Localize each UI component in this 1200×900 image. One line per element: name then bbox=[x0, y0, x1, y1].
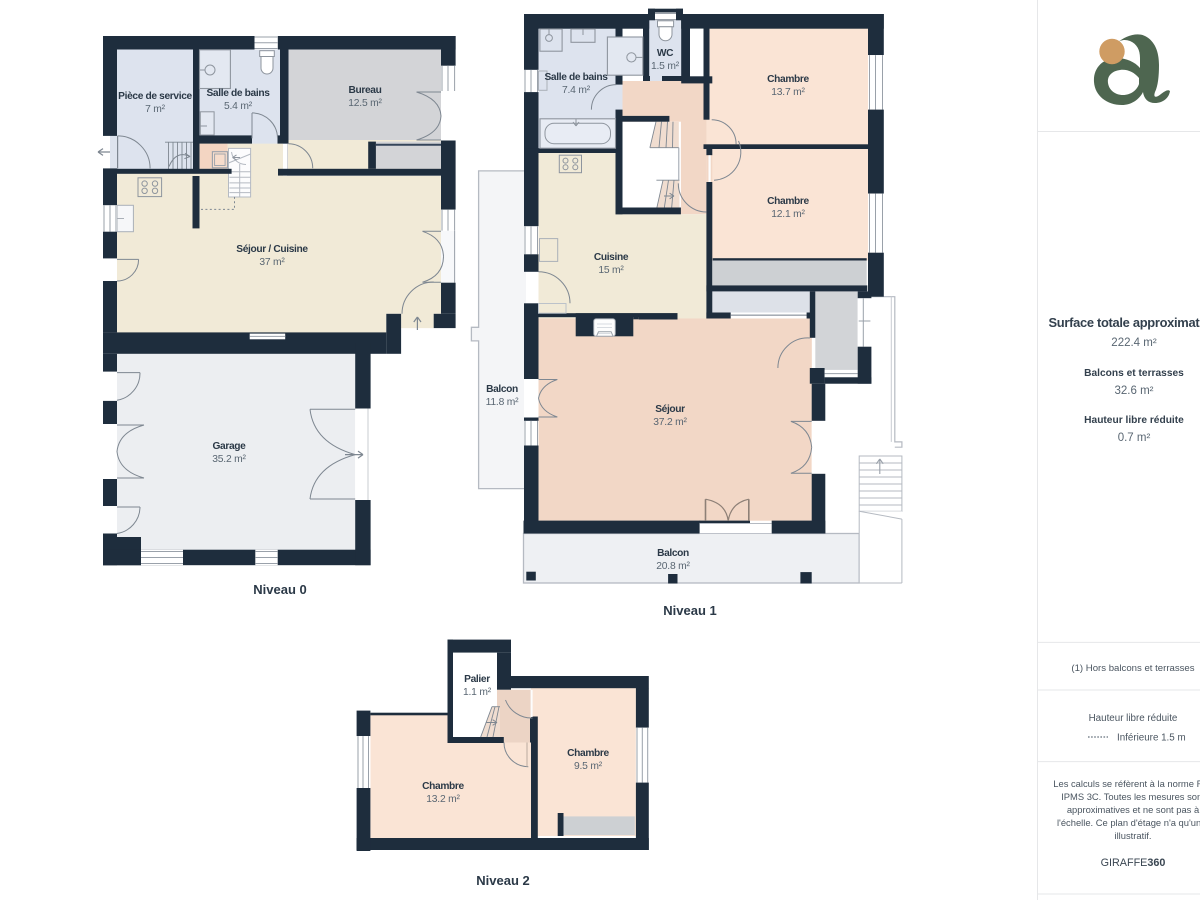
svg-text:Les calculs se réfèrent à la n: Les calculs se réfèrent à la norme RIC bbox=[1053, 778, 1200, 789]
svg-text:Chambre: Chambre bbox=[567, 748, 609, 759]
svg-text:Cuisine: Cuisine bbox=[594, 252, 629, 263]
svg-text:Inférieure 1.5 m: Inférieure 1.5 m bbox=[1117, 733, 1186, 744]
svg-text:Surface totale approximative: Surface totale approximative bbox=[1049, 315, 1200, 330]
svg-text:1.5 m²: 1.5 m² bbox=[651, 61, 680, 72]
svg-text:Chambre: Chambre bbox=[422, 781, 464, 792]
svg-text:Hauteur libre réduite: Hauteur libre réduite bbox=[1089, 713, 1178, 724]
svg-text:1.1 m²: 1.1 m² bbox=[463, 687, 492, 698]
svg-text:5.4 m²: 5.4 m² bbox=[224, 101, 253, 112]
svg-text:0.7 m²: 0.7 m² bbox=[1118, 432, 1151, 444]
svg-text:15 m²: 15 m² bbox=[598, 265, 624, 276]
svg-text:Salle de bains: Salle de bains bbox=[206, 88, 270, 99]
svg-text:Balcons et terrasses: Balcons et terrasses bbox=[1084, 368, 1184, 379]
svg-text:Chambre: Chambre bbox=[767, 196, 809, 207]
svg-text:12.5 m²: 12.5 m² bbox=[348, 98, 382, 109]
svg-text:Bureau: Bureau bbox=[349, 85, 382, 96]
svg-text:Balcon: Balcon bbox=[657, 548, 689, 559]
svg-text:(1) Hors balcons et terrasses: (1) Hors balcons et terrasses bbox=[1071, 663, 1194, 674]
svg-text:11.8 m²: 11.8 m² bbox=[486, 397, 520, 408]
svg-text:12.1 m²: 12.1 m² bbox=[771, 209, 805, 220]
svg-text:Palier: Palier bbox=[464, 674, 490, 685]
svg-text:9.5 m²: 9.5 m² bbox=[574, 761, 603, 772]
svg-text:approximatives et ne sont pas: approximatives et ne sont pas à bbox=[1067, 804, 1200, 815]
svg-text:Séjour: Séjour bbox=[655, 404, 685, 415]
svg-text:Salle de bains: Salle de bains bbox=[544, 72, 608, 83]
svg-text:IPMS 3C. Toutes les mesures so: IPMS 3C. Toutes les mesures sont bbox=[1061, 791, 1200, 802]
svg-text:Niveau 2: Niveau 2 bbox=[476, 873, 529, 888]
svg-text:13.2 m²: 13.2 m² bbox=[426, 794, 460, 805]
svg-text:WC: WC bbox=[657, 48, 674, 59]
svg-text:222.4 m²: 222.4 m² bbox=[1111, 337, 1157, 349]
svg-text:illustratif.: illustratif. bbox=[1115, 830, 1152, 841]
svg-text:Balcon: Balcon bbox=[486, 384, 518, 395]
svg-text:7 m²: 7 m² bbox=[145, 104, 166, 115]
svg-text:GIRAFFE360: GIRAFFE360 bbox=[1101, 857, 1166, 869]
svg-text:37.2 m²: 37.2 m² bbox=[653, 417, 687, 428]
svg-text:37 m²: 37 m² bbox=[259, 257, 285, 268]
svg-text:Garage: Garage bbox=[212, 441, 246, 452]
svg-text:32.6 m²: 32.6 m² bbox=[1115, 385, 1154, 397]
svg-text:7.4 m²: 7.4 m² bbox=[562, 85, 591, 96]
svg-text:Niveau 1: Niveau 1 bbox=[663, 603, 716, 618]
svg-text:Chambre: Chambre bbox=[767, 74, 809, 85]
svg-text:13.7 m²: 13.7 m² bbox=[771, 87, 805, 98]
svg-text:35.2 m²: 35.2 m² bbox=[212, 454, 246, 465]
svg-text:Hauteur libre réduite: Hauteur libre réduite bbox=[1084, 415, 1184, 426]
svg-text:Niveau 0: Niveau 0 bbox=[253, 582, 306, 597]
svg-text:l'échelle. Ce plan d'étage n'a: l'échelle. Ce plan d'étage n'a qu'un b bbox=[1057, 817, 1200, 828]
svg-text:Pièce de service: Pièce de service bbox=[118, 91, 192, 102]
svg-text:20.8 m²: 20.8 m² bbox=[656, 561, 690, 572]
svg-text:Séjour / Cuisine: Séjour / Cuisine bbox=[236, 244, 308, 255]
